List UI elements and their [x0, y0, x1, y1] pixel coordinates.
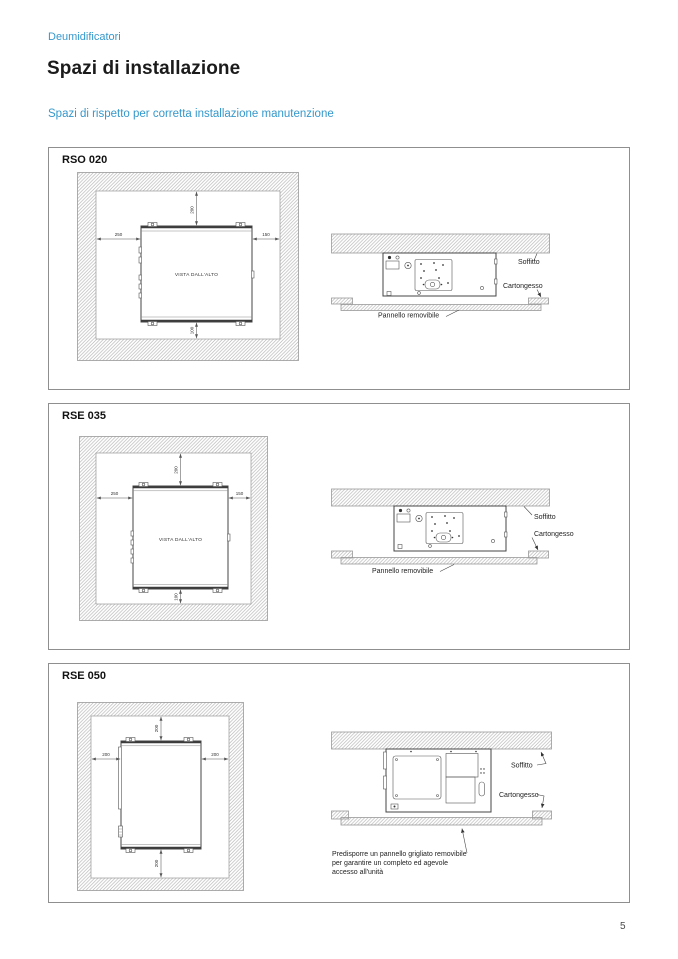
label-cartongesso: Cartongesso: [534, 531, 574, 538]
ceiling-slab: [332, 234, 550, 253]
label-cartongesso: Cartongesso: [503, 283, 543, 290]
dim-bottom: 200: [154, 859, 159, 867]
panel-rso-020: RSO 020 VISTA DALL'ALTO 200 250 150: [48, 147, 630, 390]
top-view-label: VISTA DALL'ALTO: [175, 272, 218, 278]
drywall-strip-right: [529, 551, 549, 558]
top-view-diagram: VISTA DALL'ALTO 200 250 150 100: [79, 436, 268, 621]
breadcrumb: Deumidificatori: [48, 31, 121, 43]
drywall-strip-right: [529, 298, 549, 304]
label-soffitto: Soffitto: [511, 763, 533, 770]
dim-right: 150: [236, 491, 244, 496]
top-view-label: VISTA DALL'ALTO: [159, 537, 202, 543]
label-pannello-removibile: Pannello removibile: [372, 568, 433, 575]
ceiling-slab: [332, 732, 552, 749]
side-view-diagram: Soffitto Cartongesso Pannello removibile: [331, 231, 591, 336]
model-label: RSO 020: [62, 154, 107, 166]
dim-top: 200: [174, 466, 179, 474]
dim-right: 200: [211, 752, 219, 757]
unit-top-view: VISTA DALL'ALTO: [139, 223, 254, 326]
grille-panel-note: Predisporre un pannello grigliato removi…: [332, 850, 470, 877]
page-number: 5: [620, 921, 626, 932]
removable-panel: [341, 818, 542, 826]
dim-left: 250: [115, 232, 123, 237]
unit-side-view: [384, 749, 492, 812]
panel-rse-050: RSE 050 200 200 200 200: [48, 663, 630, 903]
label-pannello-removibile: Pannello removibile: [378, 313, 439, 320]
unit-side-view: [394, 506, 507, 551]
dim-bottom: 100: [190, 326, 195, 334]
panel-rse-035: RSE 035 VISTA DALL'ALTO 200 250 150 100: [48, 403, 630, 650]
label-cartongesso: Cartongesso: [499, 792, 539, 799]
unit-side-view: [383, 253, 497, 296]
dim-top: 200: [154, 724, 159, 732]
removable-panel: [341, 305, 541, 311]
dim-top: 200: [190, 206, 195, 214]
top-view-diagram: VISTA DALL'ALTO 200 250 150 100: [77, 172, 299, 361]
model-label: RSE 035: [62, 410, 106, 422]
removable-panel: [341, 558, 537, 565]
top-view-diagram: 200 200 200 200: [77, 702, 244, 891]
unit-top-view: VISTA DALL'ALTO: [131, 483, 230, 593]
label-soffitto: Soffitto: [518, 259, 540, 266]
drywall-strip-left: [332, 298, 353, 304]
dim-bottom: 100: [174, 593, 179, 601]
page-subtitle: Spazi di rispetto per corretta installaz…: [48, 108, 334, 120]
label-soffitto: Soffitto: [534, 514, 556, 521]
dim-left: 250: [111, 491, 119, 496]
dim-left: 200: [102, 752, 110, 757]
drywall-strip-left: [332, 551, 353, 558]
page-title: Spazi di installazione: [47, 58, 240, 80]
ceiling-slab: [332, 489, 550, 506]
dim-right: 150: [262, 232, 270, 237]
model-label: RSE 050: [62, 670, 106, 682]
side-view-diagram: Soffitto Cartongesso Pannello removibile: [331, 486, 591, 591]
unit-top-view: [119, 738, 202, 853]
